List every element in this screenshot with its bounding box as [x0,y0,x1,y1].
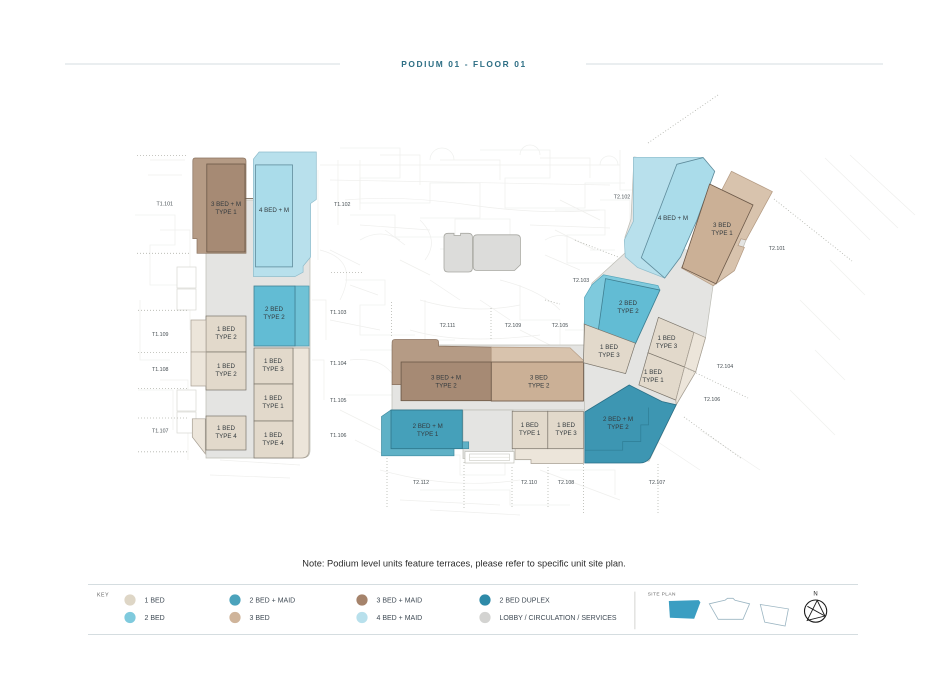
svg-text:T2.112: T2.112 [413,480,429,486]
svg-text:T1.103: T1.103 [330,310,347,316]
svg-text:TYPE 3: TYPE 3 [598,352,620,359]
svg-text:TYPE 3: TYPE 3 [262,366,284,373]
svg-text:TYPE 1: TYPE 1 [262,403,284,410]
svg-text:TYPE 4: TYPE 4 [262,440,284,447]
svg-text:2 BED + M: 2 BED + M [603,416,633,423]
svg-text:Note: Podium level units featu: Note: Podium level units feature terrace… [302,559,626,569]
svg-text:T1.104: T1.104 [330,361,347,367]
svg-text:TYPE 4: TYPE 4 [215,433,237,440]
svg-text:T2.107: T2.107 [649,480,666,486]
svg-text:KEY: KEY [97,593,109,599]
svg-text:TYPE 2: TYPE 2 [215,334,237,341]
svg-text:T1.106: T1.106 [330,433,347,439]
svg-text:1 BED: 1 BED [217,363,235,370]
svg-text:TYPE 2: TYPE 2 [263,314,285,321]
svg-text:T1.108: T1.108 [152,367,169,373]
svg-text:1 BED: 1 BED [217,326,235,333]
svg-text:T1.105: T1.105 [330,398,347,404]
svg-text:TYPE 2: TYPE 2 [607,424,629,431]
svg-text:2 BED + M: 2 BED + M [413,423,443,430]
svg-text:T2.109: T2.109 [505,323,522,329]
svg-text:N: N [813,592,817,598]
svg-text:1 BED: 1 BED [521,422,539,429]
svg-text:1 BED: 1 BED [217,425,235,432]
svg-text:T2.108: T2.108 [558,480,575,486]
svg-text:4 BED + M: 4 BED + M [259,207,289,214]
svg-text:TYPE 1: TYPE 1 [711,230,733,237]
svg-text:T1.107: T1.107 [152,429,169,435]
svg-text:T2.104: T2.104 [717,364,734,370]
svg-text:TYPE 1: TYPE 1 [215,209,237,216]
svg-text:T2.105: T2.105 [552,323,569,329]
svg-text:3 BED: 3 BED [250,615,270,622]
svg-text:2 BED DUPLEX: 2 BED DUPLEX [500,598,551,605]
svg-text:TYPE 2: TYPE 2 [528,383,550,390]
svg-text:2 BED + MAID: 2 BED + MAID [250,598,296,605]
svg-text:1 BED: 1 BED [644,369,662,376]
svg-text:4 BED + MAID: 4 BED + MAID [377,615,423,622]
svg-text:1 BED: 1 BED [557,422,575,429]
svg-text:3 BED: 3 BED [713,222,731,229]
svg-text:T2.101: T2.101 [769,246,786,252]
svg-text:T1.109: T1.109 [152,332,169,338]
svg-text:TYPE 2: TYPE 2 [435,383,457,390]
svg-text:T2.111: T2.111 [440,323,456,329]
svg-text:TYPE 2: TYPE 2 [617,308,639,315]
svg-text:TYPE 1: TYPE 1 [642,377,664,384]
svg-text:3 BED + M: 3 BED + M [211,201,241,208]
svg-text:2 BED: 2 BED [145,615,165,622]
svg-text:1 BED: 1 BED [264,358,282,365]
svg-text:TYPE 2: TYPE 2 [215,371,237,378]
svg-text:1 BED: 1 BED [145,598,165,605]
svg-text:3 BED + MAID: 3 BED + MAID [377,598,423,605]
svg-text:SITE PLAN: SITE PLAN [648,591,676,597]
svg-text:4 BED + M: 4 BED + M [658,215,688,222]
svg-text:TYPE 1: TYPE 1 [417,431,439,438]
svg-text:T2.103: T2.103 [573,278,590,284]
svg-text:3 BED: 3 BED [530,375,548,382]
svg-text:1 BED: 1 BED [658,335,676,342]
svg-text:T2.102: T2.102 [614,195,631,201]
svg-text:T2.110: T2.110 [521,480,537,486]
svg-text:PODIUM 01 - FLOOR 01: PODIUM 01 - FLOOR 01 [401,59,527,69]
svg-text:2 BED: 2 BED [265,306,283,313]
svg-text:TYPE 3: TYPE 3 [656,343,678,350]
svg-text:1 BED: 1 BED [264,395,282,402]
svg-text:LOBBY / CIRCULATION / SERVICES: LOBBY / CIRCULATION / SERVICES [500,615,617,622]
svg-text:TYPE 1: TYPE 1 [519,430,541,437]
svg-text:3 BED + M: 3 BED + M [431,375,461,382]
svg-text:T1.101: T1.101 [157,202,174,208]
svg-text:1 BED: 1 BED [264,432,282,439]
svg-text:TYPE 3: TYPE 3 [555,430,577,437]
svg-text:2 BED: 2 BED [619,300,637,307]
svg-text:T2.106: T2.106 [704,397,721,403]
svg-text:1 BED: 1 BED [600,344,618,351]
svg-text:T1.102: T1.102 [334,202,351,208]
